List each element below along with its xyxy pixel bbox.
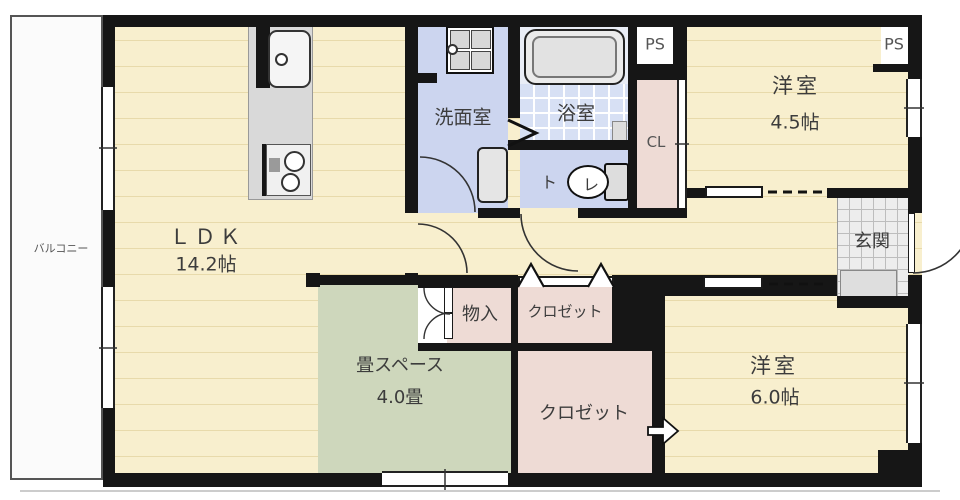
window bbox=[101, 287, 115, 408]
vanity-cabinet bbox=[477, 147, 508, 203]
wall-segment bbox=[628, 23, 637, 140]
ps-right-label: PS bbox=[884, 35, 904, 54]
window bbox=[101, 87, 115, 210]
window bbox=[382, 471, 508, 487]
wall-segment bbox=[418, 343, 652, 351]
window bbox=[906, 324, 922, 443]
wall-segment bbox=[405, 23, 418, 213]
tatami-label: 畳スペース bbox=[356, 351, 444, 377]
storage-label: 物入 bbox=[462, 300, 498, 326]
balcony-label: バルコニー bbox=[34, 240, 89, 256]
toilet-label-2: レ bbox=[583, 171, 599, 195]
cl-sliding-door bbox=[677, 80, 687, 208]
sliding-door-western2 bbox=[703, 276, 763, 289]
western2-label: 洋室 bbox=[750, 350, 798, 380]
toilet-label-1: ト bbox=[541, 169, 557, 193]
closet-lower-label: クロゼット bbox=[539, 399, 629, 425]
wall-segment bbox=[908, 137, 922, 213]
wall-segment bbox=[837, 296, 908, 308]
tatami-size-label: 4.0畳 bbox=[377, 383, 424, 409]
drain-icon bbox=[447, 44, 458, 55]
wall-segment bbox=[652, 296, 665, 487]
storage-door-leaf bbox=[444, 287, 453, 313]
bath-counter bbox=[612, 121, 627, 142]
bathroom-label: 浴室 bbox=[557, 99, 595, 126]
wall-segment bbox=[478, 208, 520, 218]
wall-segment bbox=[673, 15, 687, 72]
wall-segment bbox=[418, 275, 518, 288]
wall-segment bbox=[578, 208, 687, 218]
wall-segment bbox=[908, 15, 922, 79]
wall-segment bbox=[508, 23, 520, 118]
stove-burner bbox=[284, 151, 305, 172]
wall-segment bbox=[103, 408, 115, 478]
bifold-closet-door bbox=[518, 276, 614, 287]
sliding-door-western1 bbox=[705, 186, 763, 198]
western1-size-label: 4.5帖 bbox=[770, 108, 819, 135]
corner-pillar bbox=[878, 450, 922, 487]
entrance-door-leaf bbox=[908, 213, 915, 273]
wall-segment bbox=[508, 140, 637, 150]
wall-segment bbox=[308, 275, 418, 285]
wall-segment bbox=[103, 473, 382, 487]
ldk-label: ＬＤＫ bbox=[170, 221, 245, 251]
stove-burner bbox=[281, 173, 300, 192]
storage-door-area bbox=[418, 283, 447, 343]
wall-segment bbox=[103, 210, 115, 287]
storage-door-leaf bbox=[444, 313, 453, 339]
closet-upper-label: クロゼット bbox=[527, 301, 602, 322]
wall-segment bbox=[508, 473, 922, 487]
western1-label: 洋室 bbox=[772, 70, 820, 100]
wall-segment bbox=[908, 275, 922, 324]
bathtub-inner bbox=[532, 36, 617, 78]
ps-top-label: PS bbox=[645, 35, 665, 54]
wall-segment bbox=[511, 278, 518, 473]
entrance-label: 玄関 bbox=[854, 227, 890, 253]
washroom-label: 洗面室 bbox=[434, 103, 491, 130]
floor-plan: バルコニー bbox=[0, 0, 960, 500]
cl-label: CL bbox=[647, 133, 666, 151]
ldk-size-label: 14.2帖 bbox=[175, 250, 236, 277]
entrance-step bbox=[840, 270, 897, 298]
western2-size-label: 6.0帖 bbox=[750, 383, 799, 410]
wall-segment bbox=[405, 73, 437, 83]
washing-machine-pan-quadrant bbox=[471, 30, 491, 49]
wall-segment bbox=[873, 64, 908, 72]
window bbox=[906, 79, 922, 137]
plan-shadow-line bbox=[20, 490, 940, 492]
wall-segment bbox=[827, 188, 908, 198]
wall-segment bbox=[612, 275, 652, 349]
stove-knob bbox=[269, 158, 280, 172]
sink-faucet bbox=[275, 53, 288, 66]
washing-machine-pan-quadrant bbox=[471, 51, 491, 70]
wall-segment bbox=[103, 23, 115, 87]
